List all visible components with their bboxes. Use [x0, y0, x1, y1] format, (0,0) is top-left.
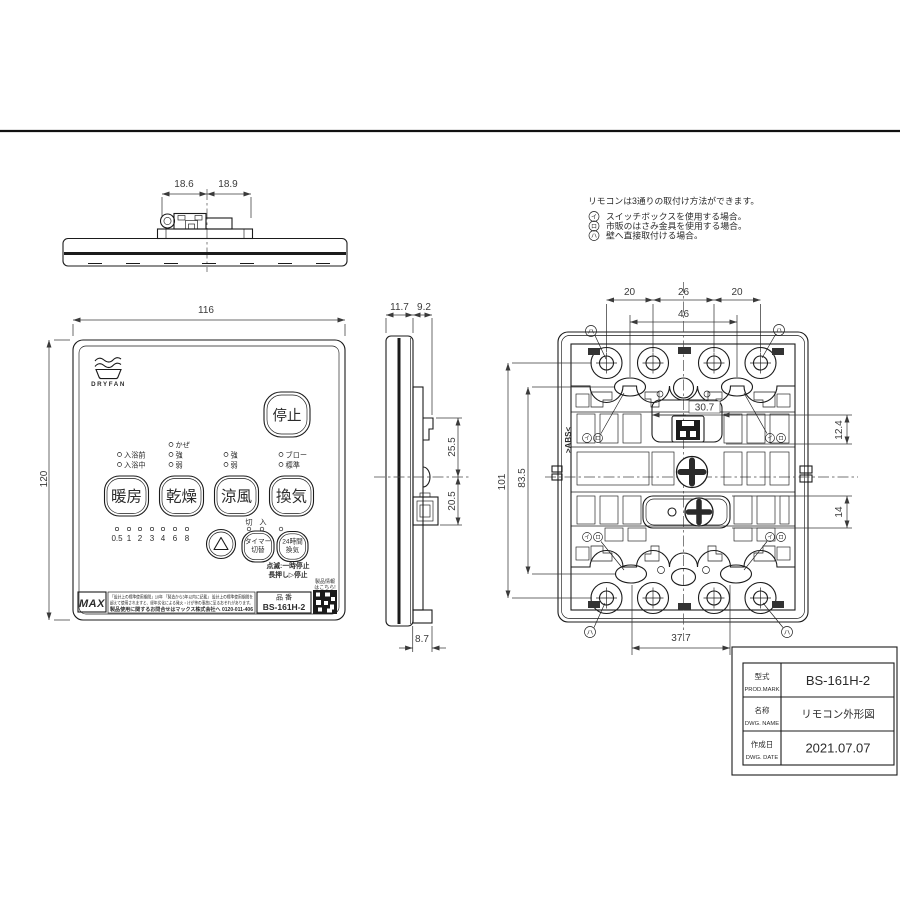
- note2-text: 市販のはさみ金具を使用する場合。: [606, 220, 747, 231]
- title-block: 型式 PROD.MARK BS-161H-2 名称 DWG. NAME リモコン…: [732, 647, 897, 775]
- led-labels: かぜ 入浴前 入浴中 強 弱 強 弱 ブロー 標準: [118, 441, 308, 470]
- warning-line1: 「設計上の標準使用期間」10年 「製造から3年以内に記載」 設計上の標準使用期間…: [110, 594, 253, 601]
- dim-116: 116: [198, 305, 214, 316]
- tb-row1-value: BS-161H-2: [806, 673, 870, 688]
- dim-30-7: 30.7: [695, 403, 715, 414]
- back-view: 20 26 20 46 >ABS<: [497, 282, 858, 655]
- warning-line2: 超えて使用されますと、経年劣化による発火・けが等の事故に至るおそれがあります。: [110, 600, 253, 607]
- mounting-notes: リモコンは3通りの取付け方法ができます。 イ スイッチボックスを使用する場合。 …: [588, 195, 759, 241]
- dim-120: 120: [39, 470, 50, 487]
- dim-12-4: 12.4: [834, 420, 845, 440]
- dim-20-5: 20.5: [447, 491, 458, 511]
- dim-18-6: 18.6: [174, 179, 194, 190]
- mark-ha-bl: ハ: [587, 630, 594, 637]
- abs-material-label: >ABS<: [564, 427, 573, 454]
- triangle-icon: [214, 538, 228, 550]
- brand-label: DRYFAN: [91, 381, 126, 388]
- mark-i-bl: イ: [584, 535, 590, 541]
- tb-row3-label-en: DWG. DATE: [746, 755, 779, 761]
- mark-ro-tr: ロ: [778, 436, 784, 442]
- drawing-sheet: 18.6 18.9 116 120: [0, 0, 900, 900]
- label-strip: 製品情報 はこちら! MAX 「設計上の標準使用期間」10年 「製造から3年以内…: [78, 578, 337, 614]
- timer-button-line1: タイマー: [245, 537, 271, 546]
- tb-row1-label-jp: 型式: [755, 671, 770, 681]
- tb-row3-label-jp: 作成日: [751, 739, 774, 749]
- hint-line1: 点滅:一時停止: [266, 561, 309, 570]
- led-dry-strong: 強: [176, 451, 183, 460]
- scale-3: 3: [150, 534, 155, 543]
- dim-101: 101: [497, 473, 508, 490]
- stop-button: 停止: [264, 392, 310, 437]
- vent24-line2: 換気: [286, 545, 300, 554]
- scale-8: 8: [185, 534, 190, 543]
- dim-20a: 20: [624, 287, 636, 298]
- mark-ha-br: ハ: [784, 630, 791, 637]
- led-in-bath: 入浴中: [124, 461, 146, 470]
- mark-i-br: イ: [767, 535, 773, 541]
- tb-row2-label-en: DWG. NAME: [745, 721, 779, 727]
- up-button: [207, 530, 236, 559]
- mark-ro-tl: ロ: [595, 436, 601, 442]
- mark-ro-bl: ロ: [595, 535, 601, 541]
- tub-icon: [96, 370, 121, 379]
- timer-button-line2: 切替: [251, 545, 265, 554]
- stop-button-label: 停止: [273, 408, 302, 425]
- dim-14: 14: [834, 506, 845, 518]
- note1-text: スイッチボックスを使用する場合。: [606, 211, 747, 222]
- scale-0-5: 0.5: [111, 534, 123, 543]
- mark-i-tr: イ: [767, 436, 773, 442]
- mark-ro-br: ロ: [778, 535, 784, 541]
- part-label: 品 番: [276, 594, 292, 602]
- vent24-line1: 24時間: [282, 538, 303, 546]
- part-number: BS-161H-2: [263, 602, 306, 612]
- cool-button-label: 涼風: [221, 488, 253, 506]
- dim-18-9: 18.9: [218, 179, 238, 190]
- tb-row2-label-jp: 名称: [755, 705, 770, 715]
- mode-buttons: 暖房 乾燥 涼風 換気: [105, 476, 314, 516]
- mark-ha-tr: ハ: [776, 328, 783, 335]
- timer-switch-button: タイマー 切替: [242, 531, 274, 562]
- mounting-screw-2: [685, 498, 713, 526]
- qr-code: [313, 590, 337, 614]
- led-blow: ブロー: [286, 451, 308, 460]
- note1-mark: イ: [591, 215, 597, 221]
- dim-25-5: 25.5: [447, 437, 458, 457]
- switch-on-label: 入: [259, 518, 266, 527]
- dim-9-2: 9.2: [417, 302, 431, 313]
- led-cool-weak: 弱: [231, 461, 238, 470]
- side-view: 11.7 9.2 25.5 20.5 8.7: [374, 302, 470, 652]
- dim-37-7: 37.7: [671, 633, 691, 644]
- max-logo: MAX: [79, 598, 105, 610]
- hint-line2: 長押し▷停止: [268, 570, 307, 579]
- note3-text: 壁へ直接取付ける場合。: [606, 230, 703, 241]
- mark-i-tl: イ: [584, 436, 590, 442]
- front-view: 116 120 DRYFAN 停止 かぜ 入浴前 入浴中 強 弱: [39, 305, 345, 620]
- qr-caption1: 製品情報: [315, 578, 335, 585]
- dim-8-7: 8.7: [415, 634, 429, 645]
- mounting-screw-1: [677, 457, 708, 488]
- led-standard: 標準: [286, 461, 300, 470]
- switch-off-label: 切: [245, 518, 252, 527]
- mark-ha-tl: ハ: [588, 329, 595, 336]
- tb-row3-value: 2021.07.07: [805, 741, 870, 756]
- led-pre-bath: 入浴前: [124, 451, 146, 460]
- top-view: 18.6 18.9: [63, 179, 347, 272]
- warning-line3: 製品使用に関するお問合せはマックス株式会社へ 0120-011-406: [109, 606, 253, 613]
- tb-row2-value: リモコン外形図: [801, 709, 875, 721]
- scale-6: 6: [173, 534, 178, 543]
- tb-row1-label-en: PROD.MARK: [744, 687, 779, 693]
- dim-83-5: 83.5: [517, 468, 528, 488]
- led-dry-weak: 弱: [176, 461, 183, 470]
- scale-1: 1: [127, 534, 132, 543]
- led-cool-strong: 強: [231, 451, 238, 460]
- dry-button-label: 乾燥: [166, 488, 198, 506]
- scale-2: 2: [138, 534, 143, 543]
- timer-scale: 0.5 1 2 3 4 6 8: [111, 527, 189, 543]
- note2-mark: ロ: [591, 225, 597, 231]
- dim-20b: 20: [731, 287, 743, 298]
- dryfan-logo: DRYFAN: [91, 358, 126, 388]
- scale-4: 4: [161, 534, 166, 543]
- dim-11-7: 11.7: [390, 302, 409, 313]
- note3-mark: ハ: [591, 234, 597, 240]
- vent24-button: 24時間 換気: [277, 532, 308, 562]
- steam-icon: [95, 358, 121, 362]
- heat-button-label: 暖房: [111, 488, 142, 506]
- notes-intro: リモコンは3通りの取付け方法ができます。: [588, 195, 759, 206]
- led-kaze: かぜ: [176, 441, 190, 450]
- vent-button-label: 換気: [276, 488, 307, 506]
- connector: 30.7: [652, 400, 852, 442]
